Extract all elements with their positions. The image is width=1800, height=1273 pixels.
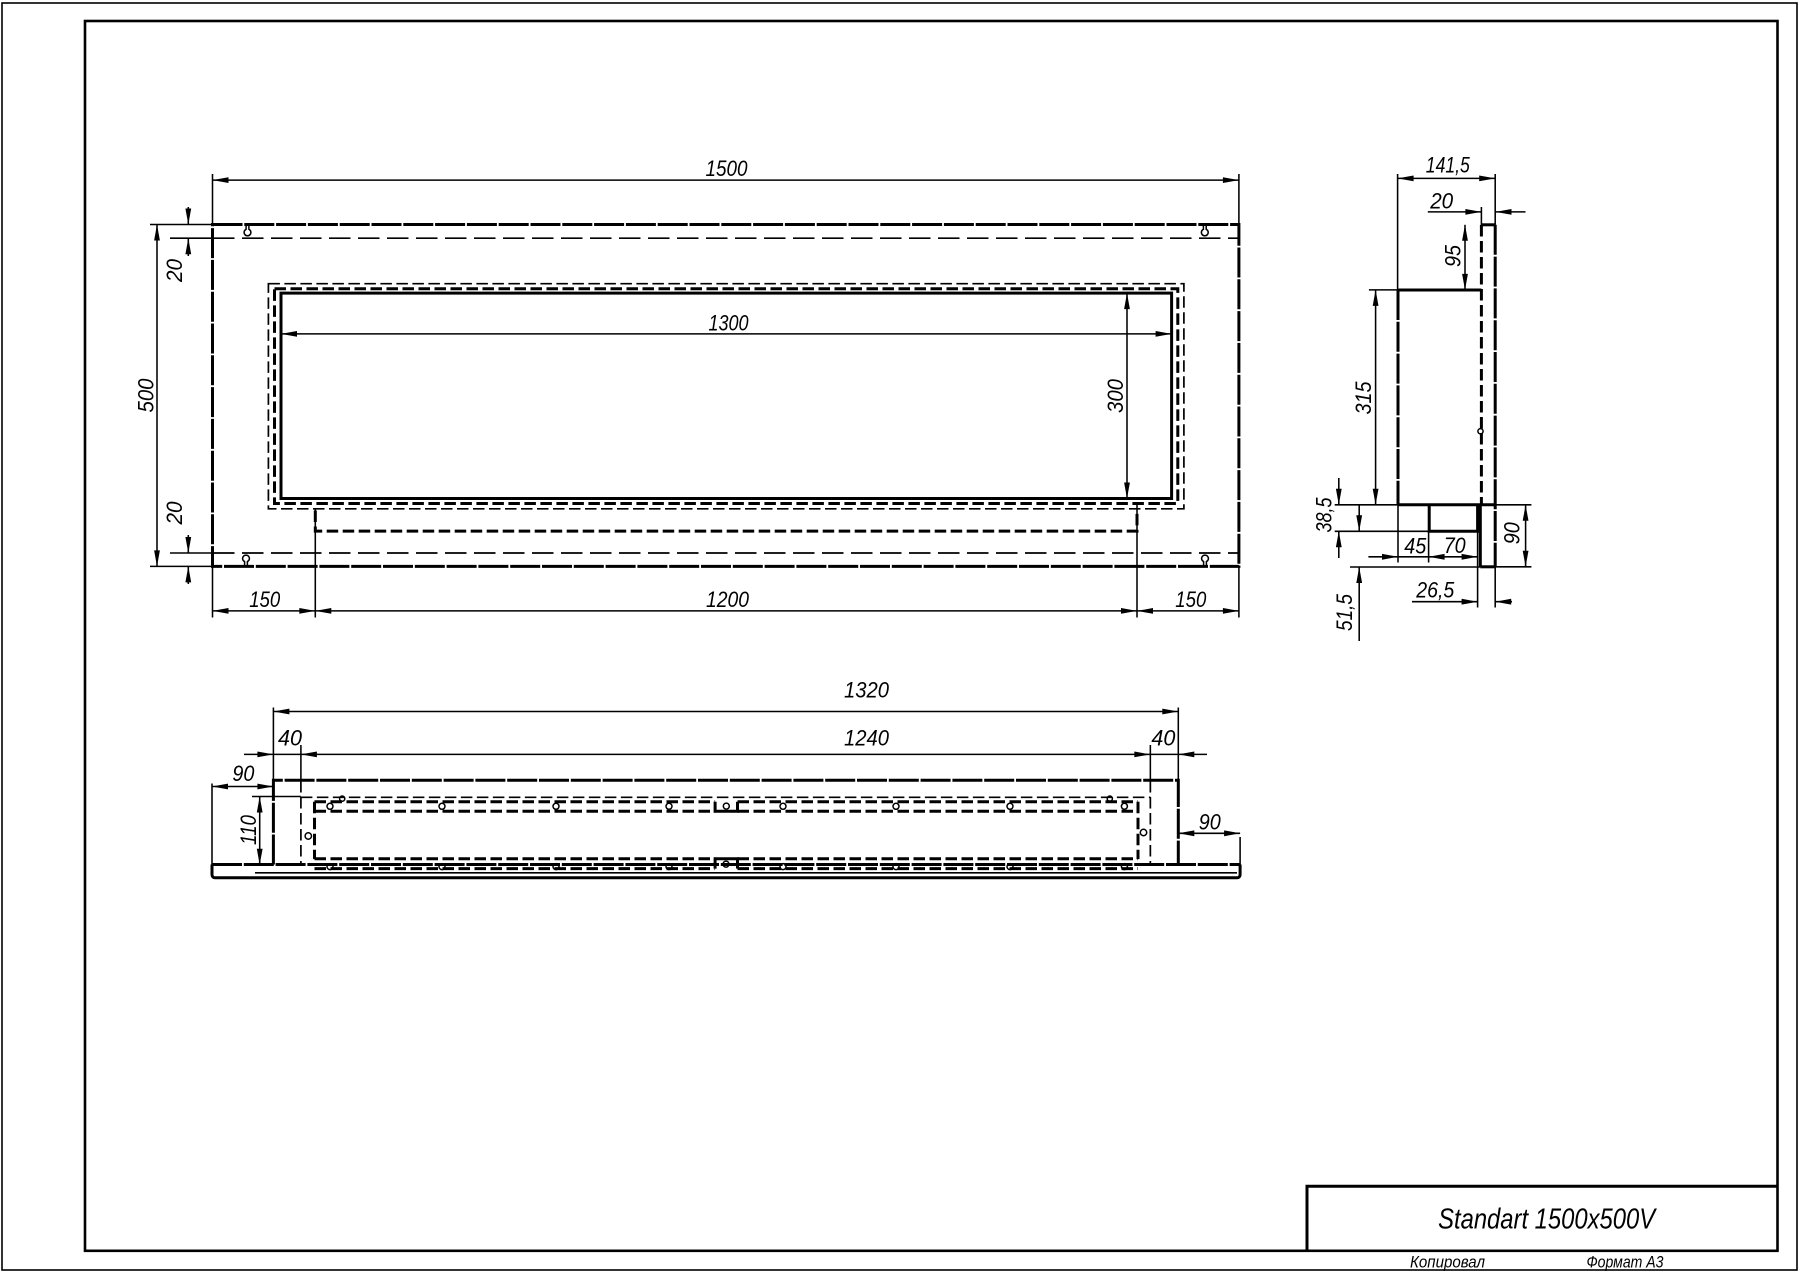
svg-text:Формат А3: Формат А3 bbox=[1587, 1254, 1665, 1272]
svg-text:150: 150 bbox=[1175, 587, 1207, 612]
svg-text:150: 150 bbox=[249, 587, 281, 612]
svg-text:90: 90 bbox=[1500, 522, 1525, 545]
svg-text:1240: 1240 bbox=[844, 726, 890, 751]
svg-text:1500: 1500 bbox=[706, 156, 749, 181]
svg-text:141,5: 141,5 bbox=[1426, 153, 1471, 178]
svg-text:40: 40 bbox=[1151, 726, 1176, 751]
svg-text:1200: 1200 bbox=[706, 587, 750, 612]
svg-text:Копировал: Копировал bbox=[1410, 1254, 1485, 1272]
svg-text:20: 20 bbox=[162, 501, 187, 526]
svg-text:90: 90 bbox=[232, 761, 255, 786]
svg-text:Standart 1500x500V: Standart 1500x500V bbox=[1438, 1204, 1657, 1236]
svg-text:315: 315 bbox=[1351, 381, 1376, 415]
svg-text:300: 300 bbox=[1103, 378, 1128, 413]
svg-text:90: 90 bbox=[1199, 810, 1222, 835]
svg-text:26,5: 26,5 bbox=[1415, 578, 1455, 603]
svg-text:40: 40 bbox=[278, 726, 303, 751]
svg-text:500: 500 bbox=[134, 378, 159, 413]
svg-text:45: 45 bbox=[1404, 533, 1427, 558]
svg-text:20: 20 bbox=[1429, 188, 1454, 213]
svg-text:1320: 1320 bbox=[844, 678, 890, 703]
svg-text:38,5: 38,5 bbox=[1312, 497, 1337, 533]
svg-text:95: 95 bbox=[1441, 244, 1466, 267]
svg-text:1300: 1300 bbox=[709, 310, 750, 335]
svg-text:70: 70 bbox=[1444, 533, 1467, 558]
svg-text:20: 20 bbox=[162, 258, 187, 283]
svg-text:51,5: 51,5 bbox=[1332, 593, 1357, 631]
svg-text:110: 110 bbox=[236, 814, 261, 845]
